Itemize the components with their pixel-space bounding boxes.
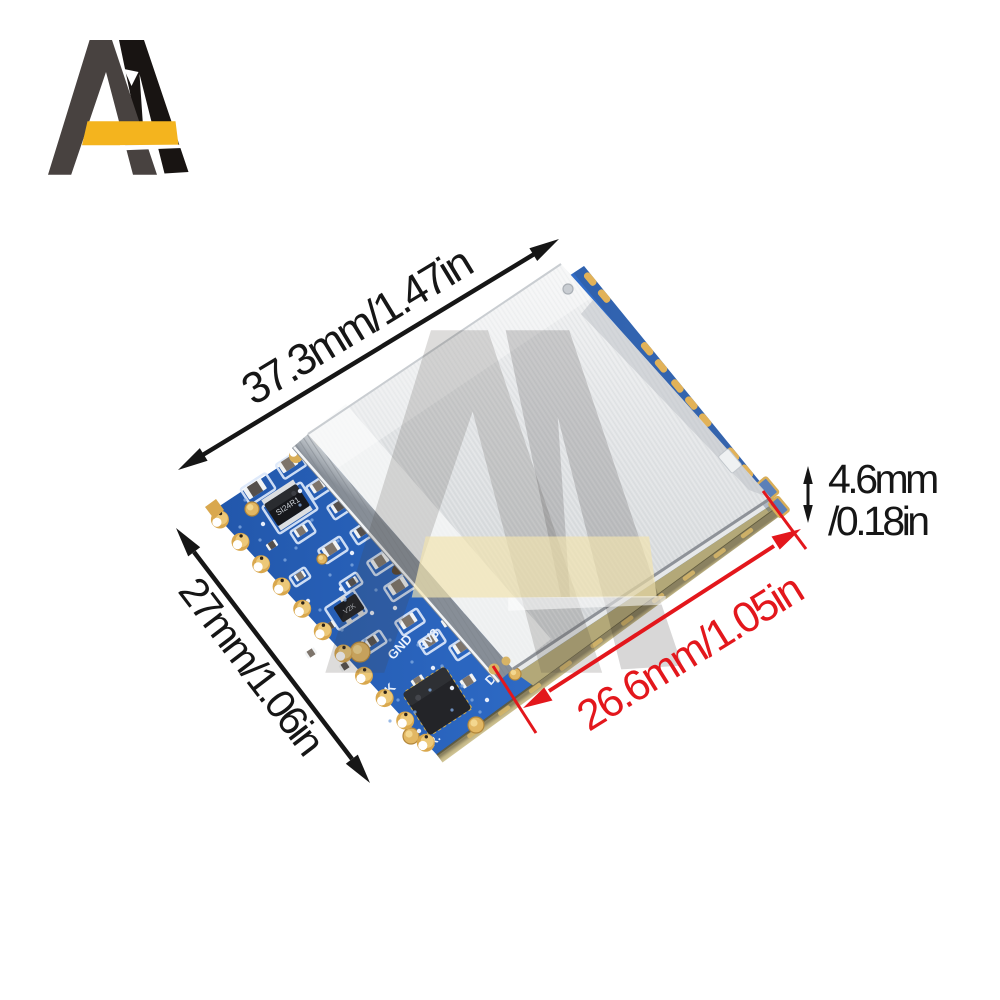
svg-text:4.6mm: 4.6mm [828, 456, 937, 502]
svg-text:/0.18in: /0.18in [828, 498, 928, 544]
